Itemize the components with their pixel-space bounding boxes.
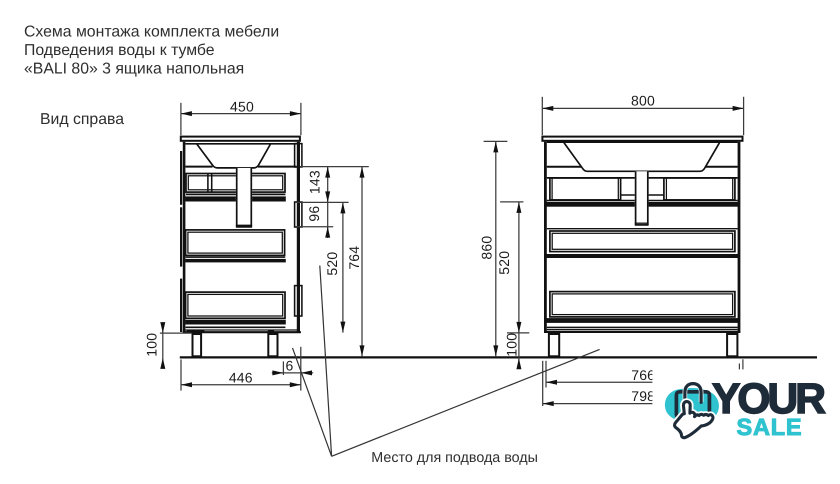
svg-text:764: 764 <box>346 246 362 270</box>
svg-text:800: 800 <box>631 92 655 108</box>
svg-text:Подведения воды к тумбе: Подведения воды к тумбе <box>24 42 215 59</box>
svg-text:450: 450 <box>230 98 254 114</box>
svg-text:Место для подвода воды: Место для подвода воды <box>371 450 538 466</box>
svg-text:Вид справа: Вид справа <box>40 111 124 128</box>
svg-text:SALE: SALE <box>737 414 803 440</box>
svg-text:520: 520 <box>496 251 512 275</box>
svg-text:520: 520 <box>324 252 340 276</box>
svg-text:798: 798 <box>631 388 655 404</box>
svg-text:6: 6 <box>286 357 294 373</box>
svg-text:143: 143 <box>306 170 322 194</box>
svg-text:«BALI 80» 3 ящика напольная: «BALI 80» 3 ящика напольная <box>24 61 244 78</box>
svg-text:766: 766 <box>631 367 655 383</box>
svg-text:Схема монтажа комплекта мебели: Схема монтажа комплекта мебели <box>24 23 279 40</box>
svg-text:100: 100 <box>144 333 160 357</box>
svg-text:446: 446 <box>229 369 253 385</box>
svg-text:860: 860 <box>479 236 495 260</box>
svg-text:100: 100 <box>503 333 519 357</box>
svg-text:96: 96 <box>306 206 322 222</box>
